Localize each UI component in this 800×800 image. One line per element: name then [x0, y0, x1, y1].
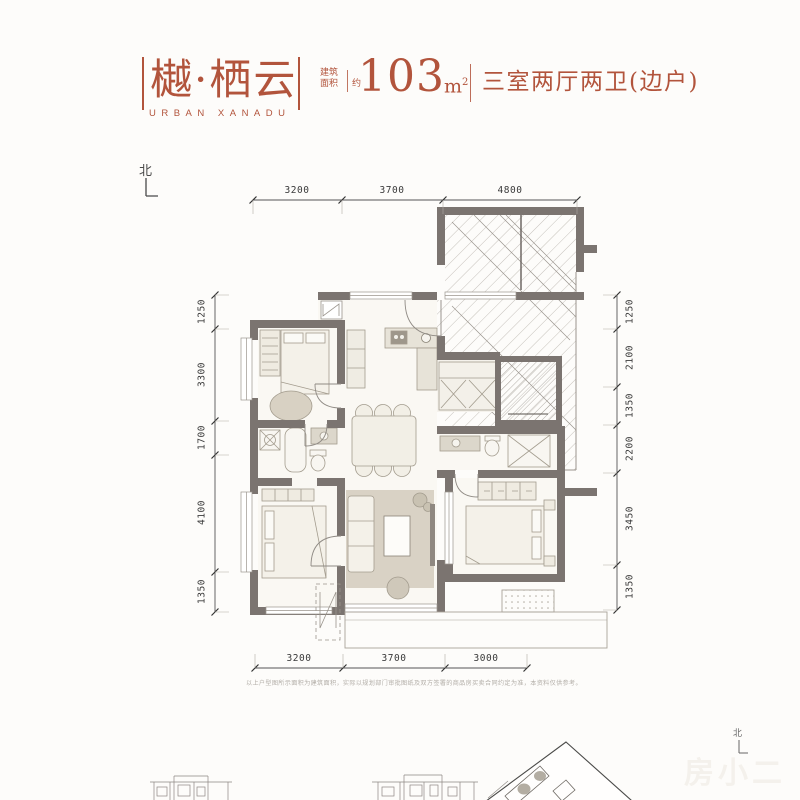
- entry-closet: [439, 362, 498, 410]
- north-arrow-top-icon: [146, 178, 158, 196]
- site-plan: [474, 742, 650, 800]
- dining-furniture: [352, 405, 416, 477]
- floorplan-page: 樾·栖云 URBAN XANADU 建筑 面积 约 103 m2 三室两厅两卫(…: [0, 0, 800, 800]
- thumbnail-plans: [150, 775, 478, 800]
- floor-plan-canvas: [0, 0, 800, 800]
- living-room-furniture: [346, 490, 435, 599]
- north-arrow-bottom-icon: [739, 740, 748, 753]
- elevator-shaft: [498, 359, 559, 423]
